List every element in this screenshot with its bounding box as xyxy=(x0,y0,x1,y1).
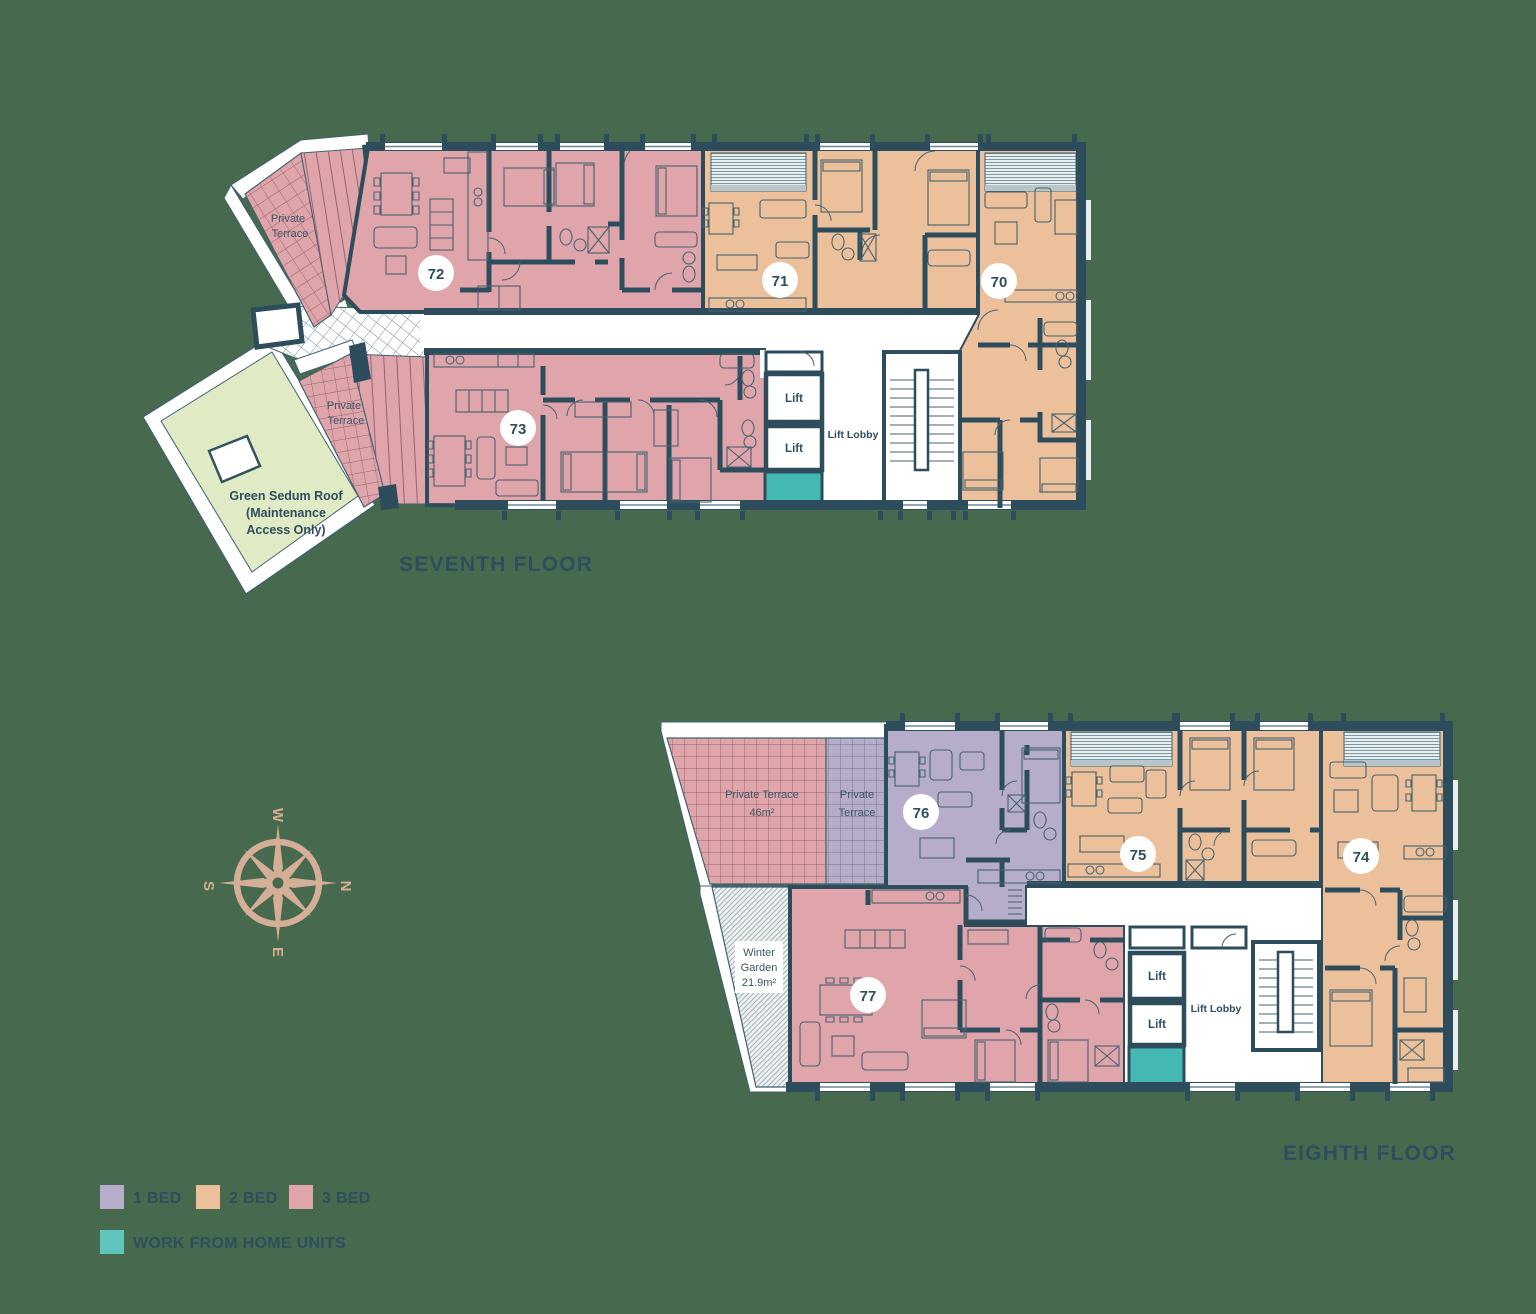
svg-text:77: 77 xyxy=(860,988,877,1005)
svg-text:1 BED: 1 BED xyxy=(133,1190,182,1207)
svg-text:73: 73 xyxy=(510,421,527,438)
svg-text:70: 70 xyxy=(991,274,1008,291)
svg-text:71: 71 xyxy=(772,273,789,290)
svg-text:Terrace: Terrace xyxy=(272,228,309,240)
svg-text:Winter: Winter xyxy=(743,947,775,959)
svg-text:Private Terrace: Private Terrace xyxy=(725,789,799,801)
svg-text:Lift: Lift xyxy=(1148,971,1166,983)
svg-text:Lift Lobby: Lift Lobby xyxy=(828,429,879,441)
svg-text:WORK FROM HOME UNITS: WORK FROM HOME UNITS xyxy=(133,1235,346,1252)
svg-text:SEVENTH FLOOR: SEVENTH FLOOR xyxy=(399,553,593,576)
svg-text:Lift: Lift xyxy=(785,393,803,405)
svg-text:Terrace: Terrace xyxy=(839,807,876,819)
svg-text:74: 74 xyxy=(1353,849,1370,866)
svg-text:W: W xyxy=(269,808,286,823)
svg-text:S: S xyxy=(200,881,217,891)
svg-text:Lift Lobby: Lift Lobby xyxy=(1191,1003,1242,1015)
svg-text:Access Only): Access Only) xyxy=(246,523,325,537)
svg-text:46m²: 46m² xyxy=(749,807,774,819)
svg-text:2 BED: 2 BED xyxy=(229,1190,278,1207)
svg-text:Green Sedum Roof: Green Sedum Roof xyxy=(229,489,343,503)
svg-text:75: 75 xyxy=(1130,847,1147,864)
svg-text:Private: Private xyxy=(327,400,361,412)
svg-text:Private: Private xyxy=(840,789,874,801)
svg-text:Private: Private xyxy=(271,213,305,225)
svg-text:(Maintenance: (Maintenance xyxy=(246,506,326,520)
svg-text:N: N xyxy=(337,881,354,892)
svg-text:Garden: Garden xyxy=(741,962,778,974)
svg-text:76: 76 xyxy=(913,805,930,822)
svg-text:Lift: Lift xyxy=(785,443,803,455)
svg-text:Lift: Lift xyxy=(1148,1019,1166,1031)
svg-text:EIGHTH FLOOR: EIGHTH FLOOR xyxy=(1283,1142,1456,1165)
svg-text:Terrace: Terrace xyxy=(328,415,365,427)
svg-text:3 BED: 3 BED xyxy=(322,1190,371,1207)
svg-text:E: E xyxy=(269,947,286,957)
svg-text:72: 72 xyxy=(428,266,445,283)
svg-text:21.9m²: 21.9m² xyxy=(742,977,777,989)
